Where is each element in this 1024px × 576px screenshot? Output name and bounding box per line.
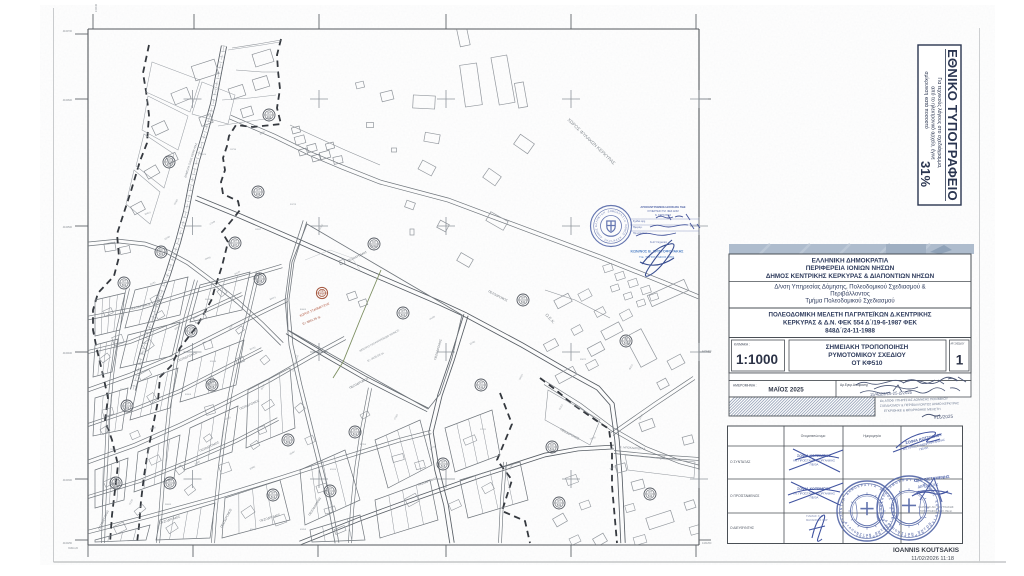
svg-text:506Α: 506Α: [113, 483, 119, 487]
svg-text:ΚΩΝ/ΝΟΣ Β. ΧΡΙΣΤΟΦΟΡΑΚΗΣ: ΚΩΝ/ΝΟΣ Β. ΧΡΙΣΤΟΦΟΡΑΚΗΣ: [631, 250, 685, 254]
svg-text:4434250: 4434250: [702, 542, 712, 545]
svg-text:ΠΕΡΙΦΕΡΕΙΑ ΙΟΝΙΩΝ ΝΗΣΩΝ: ΠΕΡΙΦΕΡΕΙΑ ΙΟΝΙΩΝ ΝΗΣΩΝ: [806, 265, 895, 272]
svg-text:ΟΤ: ΟΤ: [189, 327, 193, 331]
svg-text:35871: 35871: [580, 359, 587, 361]
svg-text:ΟΤ: ΟΤ: [401, 309, 405, 313]
svg-text:ΟΤ: ΟΤ: [479, 381, 483, 385]
svg-text:ΣΗΜΕΙΑΚΗ ΤΡΟΠΟΠΟΙΗΣΗ: ΣΗΜΕΙΑΚΗ ΤΡΟΠΟΠΟΙΗΣΗ: [826, 344, 909, 351]
svg-text:ΚΛΙΜΑΚΑ :: ΚΛΙΜΑΚΑ :: [734, 343, 750, 347]
svg-text:65200: 65200: [210, 361, 217, 363]
svg-text:Ονοματεπώνυμο: Ονοματεπώνυμο: [801, 434, 826, 438]
svg-text:ΚΧ: ΚΧ: [550, 443, 554, 447]
svg-text:520Α: 520Α: [371, 244, 377, 248]
svg-text:494: 494: [267, 115, 272, 119]
svg-text:510: 510: [401, 313, 406, 317]
svg-text:ΟΤ: ΟΤ: [233, 239, 237, 243]
svg-text:ΚΧ: ΚΧ: [258, 275, 262, 279]
svg-text:από το ηλεκτρονικό αρχείο, έγι: από το ηλεκτρονικό αρχείο, έγινε: [930, 86, 937, 160]
svg-text:Τμήμα Πολεοδομικού Σχεδιασμού: Τμήμα Πολεοδομικού Σχεδιασμού: [805, 298, 894, 305]
svg-text:503: 503: [159, 252, 164, 256]
svg-text:542: 542: [557, 503, 562, 507]
svg-text:4434700: 4434700: [63, 30, 73, 33]
svg-text:505: 505: [189, 331, 194, 335]
svg-text:ΟΤ: ΟΤ: [271, 491, 275, 495]
svg-text:511: 511: [479, 385, 484, 389]
svg-text:ΚΧ: ΚΧ: [372, 240, 376, 244]
svg-text:Περιβάλλοντος: Περιβάλλοντος: [830, 291, 870, 298]
svg-text:ΟΤ: ΟΤ: [521, 296, 525, 300]
svg-text:ΠΕ/ΘΑ: ΠΕ/ΘΑ: [810, 463, 819, 467]
svg-text:Ε: Ε: [935, 504, 939, 506]
svg-text:4434500: 4434500: [63, 226, 73, 229]
svg-text:Αρ.Εγκρ.Απόφασης: Αρ.Εγκρ.Απόφασης: [840, 383, 869, 387]
svg-text:ΜΑΪΟΣ 2025: ΜΑΪΟΣ 2025: [768, 387, 804, 394]
svg-text:510: 510: [320, 293, 325, 296]
svg-text:504: 504: [122, 283, 127, 287]
svg-text:ΚΧ: ΚΧ: [286, 436, 290, 440]
svg-text:541: 541: [550, 447, 555, 451]
svg-text:Κωδ.Υπηρεσίας: Κωδ.Υπηρεσίας: [650, 241, 668, 244]
svg-text:27821: 27821: [480, 429, 487, 431]
svg-text:85616: 85616: [250, 529, 257, 531]
svg-text:512: 512: [353, 432, 358, 436]
svg-text:93723: 93723: [290, 204, 297, 206]
svg-text:508: 508: [210, 385, 215, 389]
svg-text:IOANNIS KOUTSAKIS: IOANNIS KOUTSAKIS: [893, 547, 960, 554]
svg-text:ΚΧ: ΚΧ: [167, 158, 171, 162]
svg-text:498: 498: [258, 279, 263, 283]
svg-text:ΠΟΛΕΟΔΟΜΙΚΗ ΜΕΛΕΤΗ ΠΑΓΡΑΤΕΪΚΩΝ: ΠΟΛΕΟΔΟΜΙΚΗ ΜΕΛΕΤΗ ΠΑΓΡΑΤΕΪΚΩΝ Δ.ΚΕΝΤΡΙΚ…: [769, 312, 932, 319]
svg-text:ΠΕ/ΘΑ: ΠΕ/ΘΑ: [810, 496, 819, 500]
svg-text:65959: 65959: [300, 529, 307, 531]
svg-text:ΡΥΜΟΤΟΜΙΚΟΥ ΣΧΕΔΙΟΥ: ΡΥΜΟΤΟΜΙΚΟΥ ΣΧΕΔΙΟΥ: [828, 352, 906, 359]
svg-text:ΕΛΛΗΝΙΚΗ ΔΗΜΟΚΡΑΤΙΑ: ΕΛΛΗΝΙΚΗ ΔΗΜΟΚΡΑΤΙΑ: [812, 258, 889, 265]
svg-text:ΟΤ: ΟΤ: [648, 490, 652, 494]
svg-text:87955: 87955: [360, 444, 367, 446]
svg-text:513: 513: [271, 495, 276, 499]
svg-text:ΟΤ: ΟΤ: [353, 428, 357, 432]
svg-text:1: 1: [956, 353, 964, 368]
svg-text:ΚΧ: ΚΧ: [159, 248, 163, 252]
svg-text:48520: 48520: [200, 154, 207, 156]
svg-text:ΟΤ: ΟΤ: [557, 499, 561, 503]
svg-text:Για τεχνικούς λόγους στο σχεδι: Για τεχνικούς λόγους στο σχεδιάγραμμα,: [936, 78, 943, 169]
svg-text:80005: 80005: [300, 309, 307, 311]
svg-text:4434300: 4434300: [63, 479, 73, 482]
svg-text:18730: 18730: [230, 149, 237, 151]
svg-text:98085: 98085: [165, 504, 172, 506]
svg-text:78574: 78574: [110, 449, 117, 451]
svg-text:Ο ΔΙΕΥΘΥΝΤΗΣ: Ο ΔΙΕΥΘΥΝΤΗΣ: [730, 526, 754, 530]
svg-text:Τ: Τ: [910, 478, 912, 482]
svg-text:ΧΩΝΑ 20: ΧΩΝΑ 20: [68, 547, 79, 550]
svg-text:Ο ΣΥΝΤΑΞΑΣ: Ο ΣΥΝΤΑΞΑΣ: [730, 460, 750, 464]
svg-text:35132: 35132: [120, 389, 127, 391]
svg-text:506: 506: [125, 406, 130, 410]
svg-text:31%: 31%: [918, 161, 933, 187]
svg-text:Ο ΠΡΟΪΣΤΑΜΕΝΟΣ: Ο ΠΡΟΪΣΤΑΜΕΝΟΣ: [730, 494, 759, 498]
svg-text:ΑΠΟΚΕΝΤΡΩΜΕΝΗ ΔΙΟΙΚΗΣΗ ΠΔΕ: ΑΠΟΚΕΝΤΡΩΜΕΝΗ ΔΙΟΙΚΗΣΗ ΠΔΕ: [640, 205, 685, 209]
svg-text:ΚΕΡΚΥΡΑΣ & Δ.Ν. ΦΕΚ 554 Δ΄/19-: ΚΕΡΚΥΡΑΣ & Δ.Ν. ΦΕΚ 554 Δ΄/19-6-1987 ΦΕΚ: [783, 320, 917, 327]
svg-text:ΑΡ. ΣΧΕΔΙΟΥ: ΑΡ. ΣΧΕΔΙΟΥ: [951, 343, 965, 346]
svg-text:848Δ΄/24-11-1988: 848Δ΄/24-11-1988: [825, 328, 875, 335]
svg-text:ΟΤ: ΟΤ: [328, 487, 332, 491]
svg-text:ΚΧ: ΚΧ: [114, 479, 118, 483]
svg-text:Ημερομηνία: Ημερομηνία: [863, 434, 881, 438]
svg-text:ΟΤ: ΟΤ: [210, 381, 214, 385]
svg-text:540: 540: [521, 300, 526, 304]
svg-text:515: 515: [441, 464, 446, 468]
svg-text:496: 496: [256, 192, 261, 196]
svg-text:ΟΤ: ΟΤ: [125, 402, 129, 406]
svg-text:ΟΤ: ΟΤ: [267, 111, 271, 115]
svg-text:497: 497: [233, 243, 238, 247]
svg-text:ΗΜΕΡΟΜΗΝΙΑ :: ΗΜΕΡΟΜΗΝΙΑ :: [733, 384, 757, 388]
svg-text:ΟΤ: ΟΤ: [168, 479, 172, 483]
svg-text:18317: 18317: [255, 229, 262, 231]
svg-text:45314: 45314: [330, 469, 337, 471]
svg-text:4434400: 4434400: [702, 350, 712, 353]
svg-text:4434600: 4434600: [63, 99, 73, 102]
svg-text:509: 509: [286, 440, 291, 444]
svg-text:Ημερομ.: Ημερομ.: [633, 226, 643, 229]
svg-text:Σχέδιο αρχ.: Σχέδιο αρχ.: [633, 220, 646, 223]
svg-text:Δ/νση Υπηρεσίας Δόμησης, Πολεο: Δ/νση Υπηρεσίας Δόμησης, Πολεοδομικού Σχ…: [774, 284, 925, 291]
svg-text:Τ: Τ: [867, 483, 869, 487]
svg-text:1:1000: 1:1000: [736, 352, 778, 367]
svg-text:ΔΗΜΟΣ ΚΕΝΤΡΙΚΗΣ ΚΕΡΚΥΡΑΣ & ΔΙΑ: ΔΗΜΟΣ ΚΕΝΤΡΙΚΗΣ ΚΕΡΚΥΡΑΣ & ΔΙΑΠΟΝΤΙΩΝ ΝΗ…: [766, 273, 935, 280]
svg-text:ΟΤ: ΟΤ: [256, 188, 260, 192]
svg-text:215400: 215400: [95, 3, 98, 12]
svg-text:ΕΘΝΙΚΟ ΤΥΠΟΓΡΑΦΕΙΟ: ΕΘΝΙΚΟ ΤΥΠΟΓΡΑΦΕΙΟ: [945, 49, 960, 201]
svg-text:ΟΤ: ΟΤ: [122, 279, 126, 283]
svg-text:ΟΤ ΚΦ510: ΟΤ ΚΦ510: [852, 360, 883, 367]
svg-text:11/02/2026 11:18: 11/02/2026 11:18: [911, 556, 954, 562]
svg-text:4434400: 4434400: [63, 352, 73, 355]
svg-text:507: 507: [168, 483, 173, 487]
svg-text:514: 514: [328, 491, 333, 495]
svg-text:495: 495: [167, 162, 172, 166]
svg-text:ΟΤ: ΟΤ: [441, 460, 445, 464]
svg-text:σμίκρυνση κατά ποσοστό: σμίκρυνση κατά ποσοστό: [923, 71, 930, 129]
svg-text:58490: 58490: [205, 299, 212, 301]
svg-text:544: 544: [648, 494, 653, 498]
svg-text:ΣΥΝΕΡΓΕΙΟ ΤΜ. ΦΕΚ ΔΟΜ: ΣΥΝΕΡΓΕΙΟ ΤΜ. ΦΕΚ ΔΟΜ: [647, 210, 678, 213]
svg-text:80906: 80906: [185, 394, 192, 396]
svg-text:4434250: 4434250: [63, 542, 73, 545]
